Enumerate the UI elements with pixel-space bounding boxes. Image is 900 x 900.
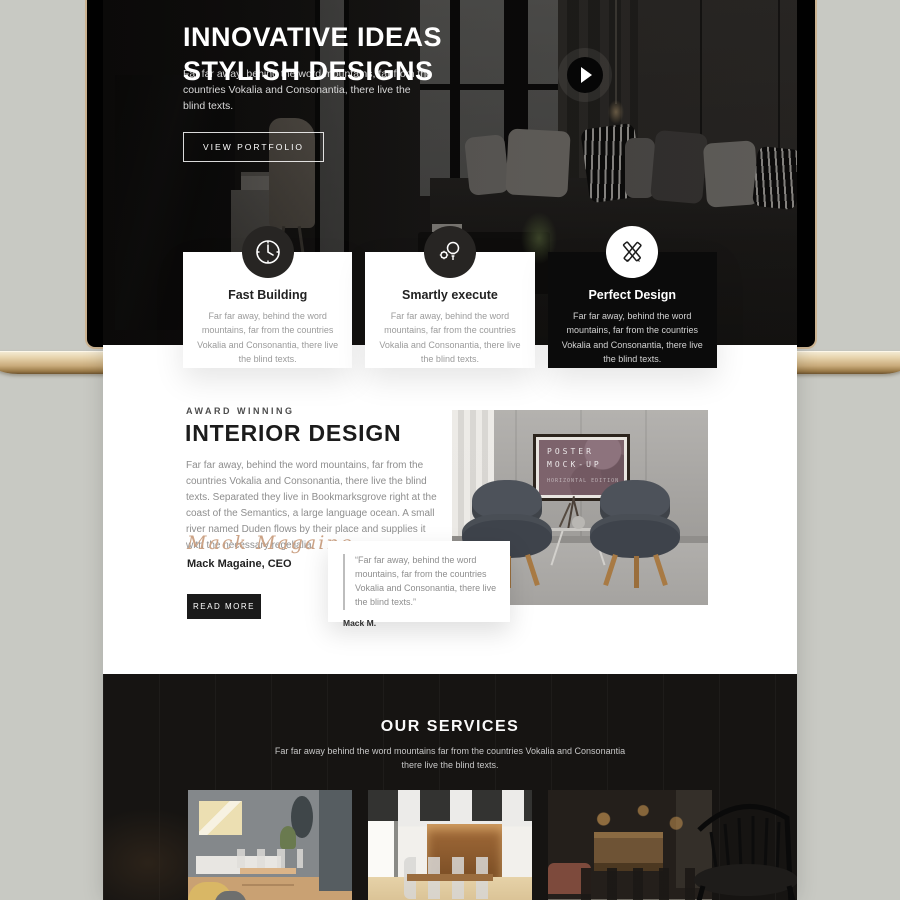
hero-content: INNOVATIVE IDEASSTYLISH DESIGNS Far far … (183, 20, 583, 162)
feature-card-fast-building: Fast Building Far far away, behind the w… (183, 226, 352, 368)
idea-gears-icon (424, 226, 476, 278)
feature-title: Perfect Design (559, 288, 706, 302)
play-button[interactable] (567, 57, 603, 93)
website-page: INNOVATIVE IDEASSTYLISH DESIGNS Far far … (103, 0, 797, 900)
view-portfolio-button[interactable]: VIEW PORTFOLIO (183, 132, 324, 162)
read-more-button[interactable]: READ MORE (187, 594, 261, 619)
feature-text: Far far away, behind the word mountains,… (194, 309, 341, 367)
feature-title: Fast Building (194, 288, 341, 302)
ceo-name: Mack Magaine, CEO (187, 558, 292, 570)
about-title: INTERIOR DESIGN (185, 420, 401, 447)
feature-title: Smartly execute (376, 288, 523, 302)
presentation-stage: INNOVATIVE IDEASSTYLISH DESIGNS Far far … (0, 0, 900, 900)
pencil-ruler-icon (606, 226, 658, 278)
feature-text: Far far away, behind the word mountains,… (559, 309, 706, 367)
conference-room-photo[interactable] (368, 790, 532, 900)
decor-chair-silhouette (691, 788, 797, 900)
dining-room-photo[interactable] (188, 790, 352, 900)
testimonial-card: “Far far away, behind the word mountains… (328, 541, 510, 622)
testimonial-author: Mack M. (343, 618, 498, 628)
hero-title: INNOVATIVE IDEASSTYLISH DESIGNS (183, 20, 583, 54)
services-subtitle: Far far away behind the word mountains f… (270, 744, 630, 773)
feature-cards: Fast Building Far far away, behind the w… (183, 226, 717, 368)
poster-line2: MOCK-UP (547, 460, 602, 469)
feature-card-perfect-design: Perfect Design Far far away, behind the … (548, 226, 717, 368)
feature-card-smartly-execute: Smartly execute Far far away, behind the… (365, 226, 534, 368)
armchair-shape (588, 480, 684, 588)
vase-shape (572, 516, 585, 529)
testimonial-text: “Far far away, behind the word mountains… (343, 554, 498, 610)
services-gallery (188, 790, 712, 900)
about-eyebrow: AWARD WINNING (186, 406, 295, 416)
services-title: OUR SERVICES (103, 718, 797, 736)
services-section: OUR SERVICES Far far away behind the wor… (103, 674, 797, 900)
clock-icon (242, 226, 294, 278)
feature-text: Far far away, behind the word mountains,… (376, 309, 523, 367)
poster-line1: POSTER (547, 447, 594, 456)
restaurant-photo[interactable] (548, 790, 712, 900)
